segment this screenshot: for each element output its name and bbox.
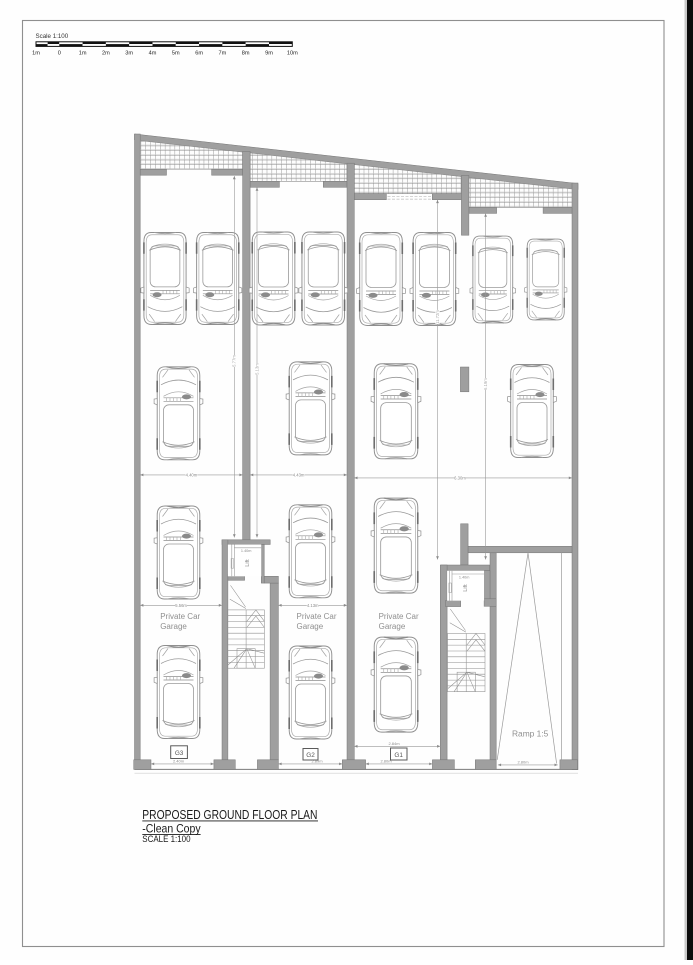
svg-text:5.13m: 5.13m [254, 363, 259, 375]
svg-text:6.19m: 6.19m [483, 378, 488, 390]
svg-text:4.40m: 4.40m [186, 473, 198, 478]
svg-text:1.40m: 1.40m [459, 575, 470, 579]
svg-text:G1: G1 [394, 752, 403, 759]
svg-text:PROPOSED GROUND FLOOR PLAN: PROPOSED GROUND FLOOR PLAN [142, 807, 317, 822]
svg-text:6m: 6m [195, 51, 203, 57]
svg-text:2.84m: 2.84m [388, 741, 400, 746]
svg-text:5.77m: 5.77m [232, 355, 237, 367]
svg-text:2m: 2m [102, 51, 110, 57]
svg-text:2.80m: 2.80m [517, 760, 529, 765]
svg-text:9m: 9m [265, 51, 273, 57]
svg-text:Lift: Lift [463, 584, 469, 592]
svg-text:5m: 5m [172, 51, 180, 57]
svg-text:6.30m: 6.30m [454, 476, 466, 481]
svg-text:Lift: Lift [245, 559, 251, 567]
svg-text:5.56m: 5.56m [175, 603, 187, 608]
svg-text:G2: G2 [306, 752, 315, 759]
svg-text:G3: G3 [175, 750, 184, 757]
svg-text:3m: 3m [125, 51, 133, 57]
svg-text:Private Car: Private Car [297, 612, 337, 621]
svg-text:Ramp 1:5: Ramp 1:5 [512, 729, 549, 739]
svg-text:Scale 1:100: Scale 1:100 [36, 33, 69, 40]
svg-text:4.13m: 4.13m [307, 603, 319, 608]
svg-text:Garage: Garage [160, 622, 187, 631]
svg-text:10m: 10m [287, 51, 298, 57]
svg-text:Garage: Garage [297, 622, 324, 631]
svg-text:4m: 4m [149, 51, 157, 57]
svg-text:8m: 8m [242, 51, 250, 57]
svg-text:1m: 1m [79, 51, 87, 57]
svg-text:2.40m: 2.40m [173, 759, 185, 764]
svg-text:Garage: Garage [379, 622, 406, 631]
svg-text:4.43m: 4.43m [293, 473, 305, 478]
svg-text:Private Car: Private Car [160, 612, 200, 621]
svg-text:SCALE 1:100: SCALE 1:100 [142, 834, 190, 844]
svg-text:Private Car: Private Car [379, 612, 419, 621]
svg-text:1m: 1m [32, 51, 40, 57]
svg-text:1.40m: 1.40m [241, 549, 252, 553]
svg-text:11.72m: 11.72m [435, 310, 440, 324]
svg-text:0: 0 [58, 51, 61, 57]
svg-text:7m: 7m [219, 51, 227, 57]
